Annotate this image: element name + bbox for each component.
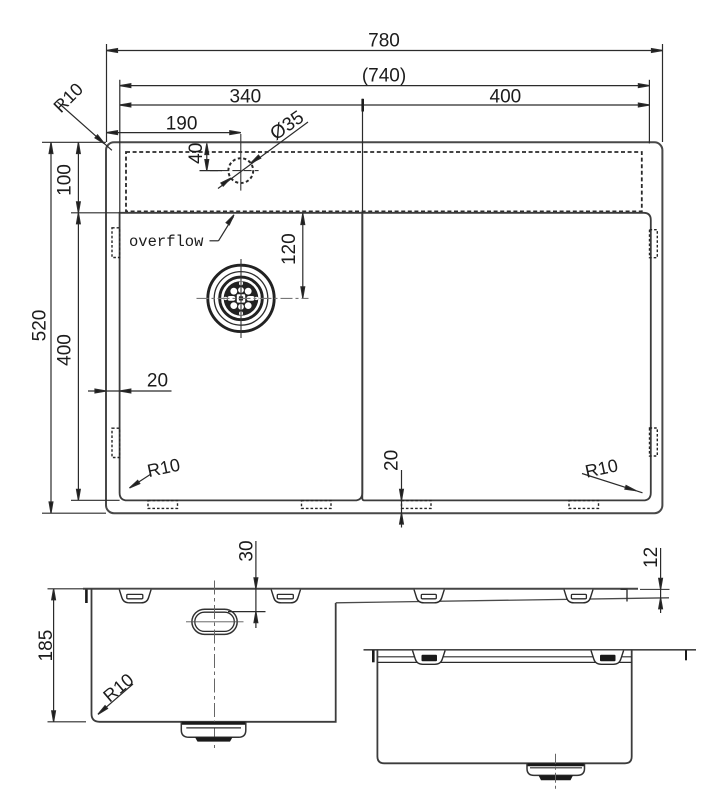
- svg-text:Ø35: Ø35: [267, 107, 308, 145]
- svg-text:(740): (740): [362, 65, 406, 86]
- svg-text:190: 190: [166, 114, 198, 135]
- svg-text:R10: R10: [145, 455, 181, 481]
- svg-text:12: 12: [641, 547, 662, 568]
- svg-text:20: 20: [382, 450, 403, 471]
- svg-text:100: 100: [55, 164, 76, 196]
- svg-text:R10: R10: [50, 79, 87, 116]
- svg-text:340: 340: [230, 86, 262, 107]
- svg-text:40: 40: [186, 143, 207, 164]
- svg-text:R10: R10: [583, 455, 619, 481]
- svg-text:20: 20: [147, 371, 168, 392]
- svg-text:R10: R10: [99, 670, 137, 707]
- svg-text:400: 400: [490, 86, 522, 107]
- svg-text:overflow: overflow: [129, 233, 204, 251]
- svg-text:400: 400: [55, 334, 76, 366]
- svg-text:780: 780: [368, 31, 400, 52]
- svg-text:30: 30: [236, 540, 257, 561]
- svg-text:185: 185: [36, 630, 57, 662]
- svg-text:120: 120: [279, 233, 300, 265]
- svg-text:520: 520: [29, 310, 50, 342]
